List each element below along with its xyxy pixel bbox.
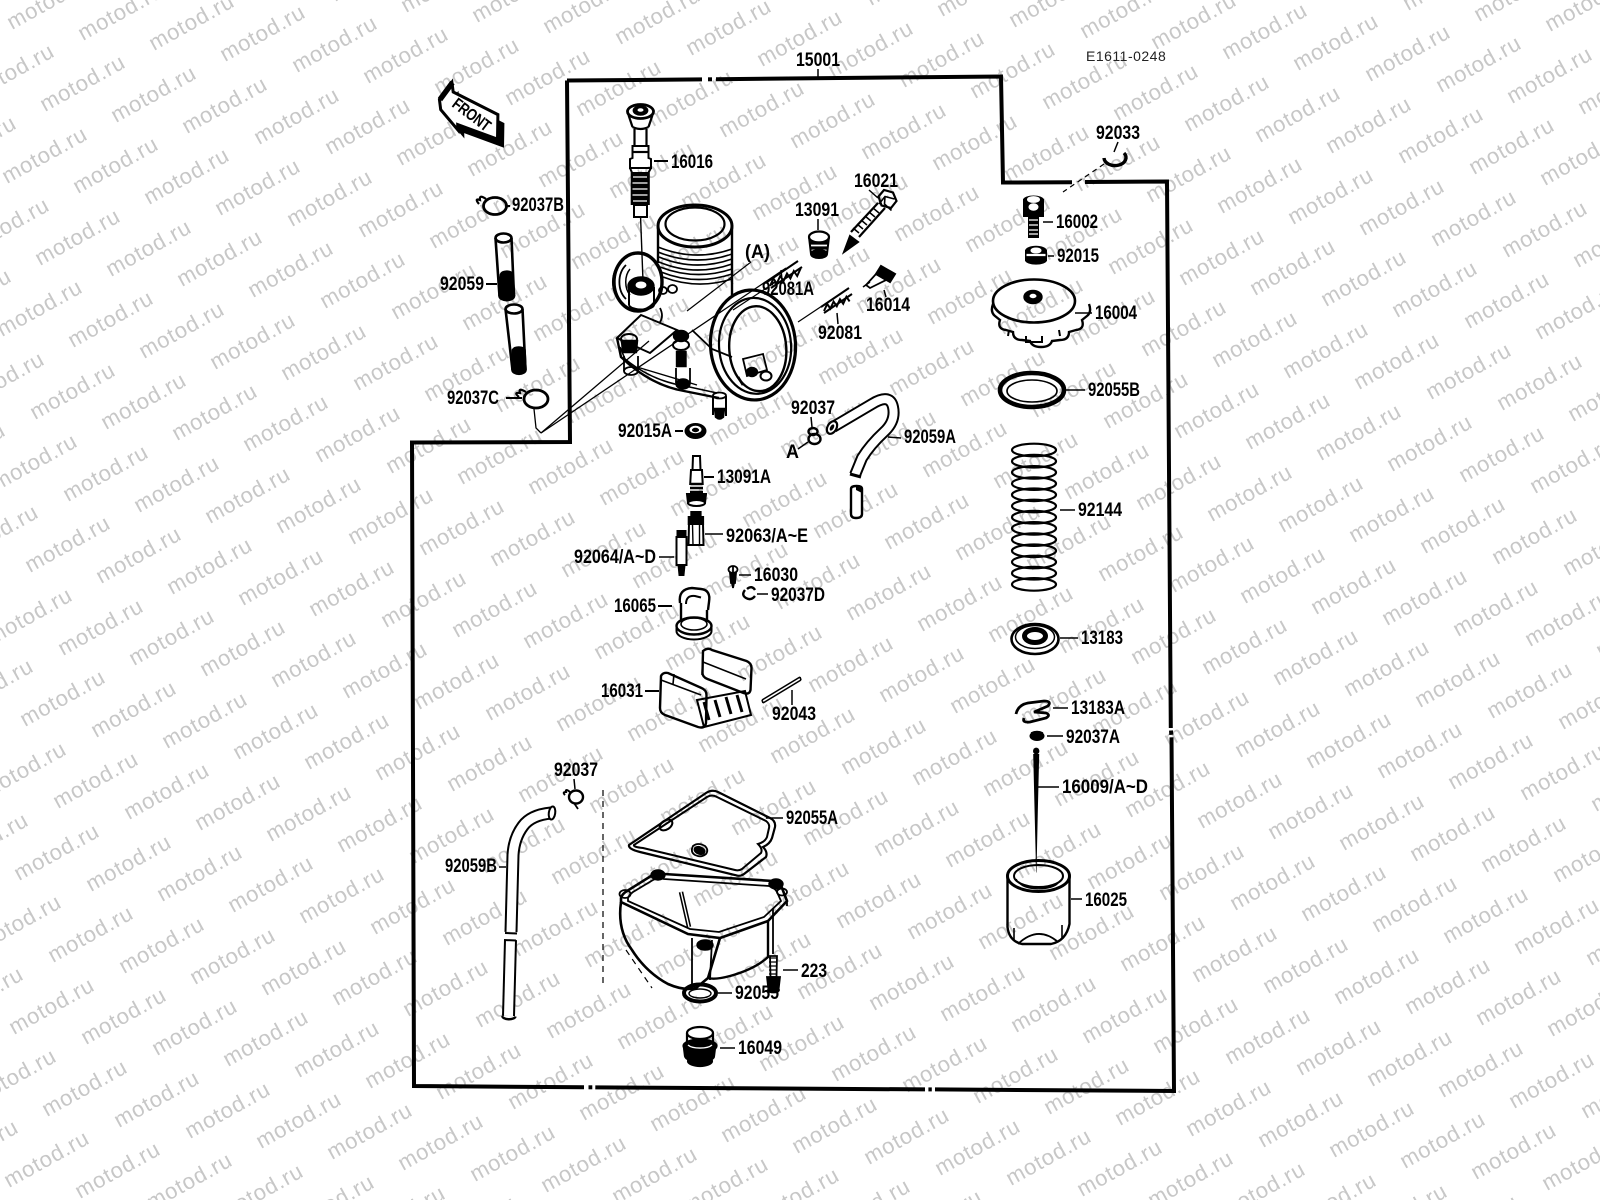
svg-text:92081: 92081	[818, 323, 862, 344]
svg-text:223: 223	[801, 961, 827, 982]
svg-text:92059: 92059	[440, 274, 484, 295]
svg-text:16002: 16002	[1056, 212, 1098, 233]
svg-text:16065: 16065	[614, 596, 656, 617]
svg-text:92055B: 92055B	[1088, 380, 1140, 401]
svg-text:16014: 16014	[866, 295, 910, 316]
svg-text:13183: 13183	[1081, 628, 1123, 649]
svg-text:92015A: 92015A	[618, 421, 672, 442]
svg-text:16049: 16049	[738, 1038, 782, 1059]
svg-text:16009/A~D: 16009/A~D	[1062, 777, 1148, 798]
svg-text:13183A: 13183A	[1071, 698, 1125, 719]
svg-text:16030: 16030	[754, 565, 798, 586]
svg-text:92144: 92144	[1078, 500, 1122, 521]
svg-text:16004: 16004	[1095, 303, 1137, 324]
svg-text:92015: 92015	[1057, 246, 1099, 267]
svg-text:92037C: 92037C	[447, 388, 499, 409]
svg-text:13091: 13091	[795, 200, 839, 221]
svg-text:92043: 92043	[772, 704, 816, 725]
svg-text:92055A: 92055A	[786, 808, 838, 829]
svg-text:92037B: 92037B	[512, 195, 564, 216]
svg-text:92037: 92037	[791, 398, 835, 419]
svg-text:92037D: 92037D	[771, 585, 825, 606]
svg-text:(A): (A)	[745, 242, 770, 263]
svg-text:16025: 16025	[1085, 890, 1127, 911]
svg-text:13091A: 13091A	[717, 467, 771, 488]
svg-text:15001: 15001	[796, 50, 840, 71]
svg-text:A: A	[786, 442, 799, 463]
svg-text:92063/A~E: 92063/A~E	[726, 526, 808, 547]
svg-text:92037A: 92037A	[1066, 727, 1120, 748]
svg-text:92081A: 92081A	[762, 279, 814, 300]
svg-text:92037: 92037	[554, 760, 598, 781]
svg-text:92055: 92055	[735, 983, 779, 1004]
svg-text:16021: 16021	[854, 171, 898, 192]
svg-text:92059B: 92059B	[445, 856, 497, 877]
svg-text:16031: 16031	[601, 681, 643, 702]
svg-text:motod.ru: motod.ru	[1540, 0, 1600, 36]
svg-text:16016: 16016	[671, 152, 713, 173]
svg-text:92059A: 92059A	[904, 427, 956, 448]
svg-text:92064/A~D: 92064/A~D	[574, 547, 656, 568]
svg-text:92033: 92033	[1096, 123, 1140, 144]
svg-text:E1611-0248: E1611-0248	[1086, 48, 1166, 64]
